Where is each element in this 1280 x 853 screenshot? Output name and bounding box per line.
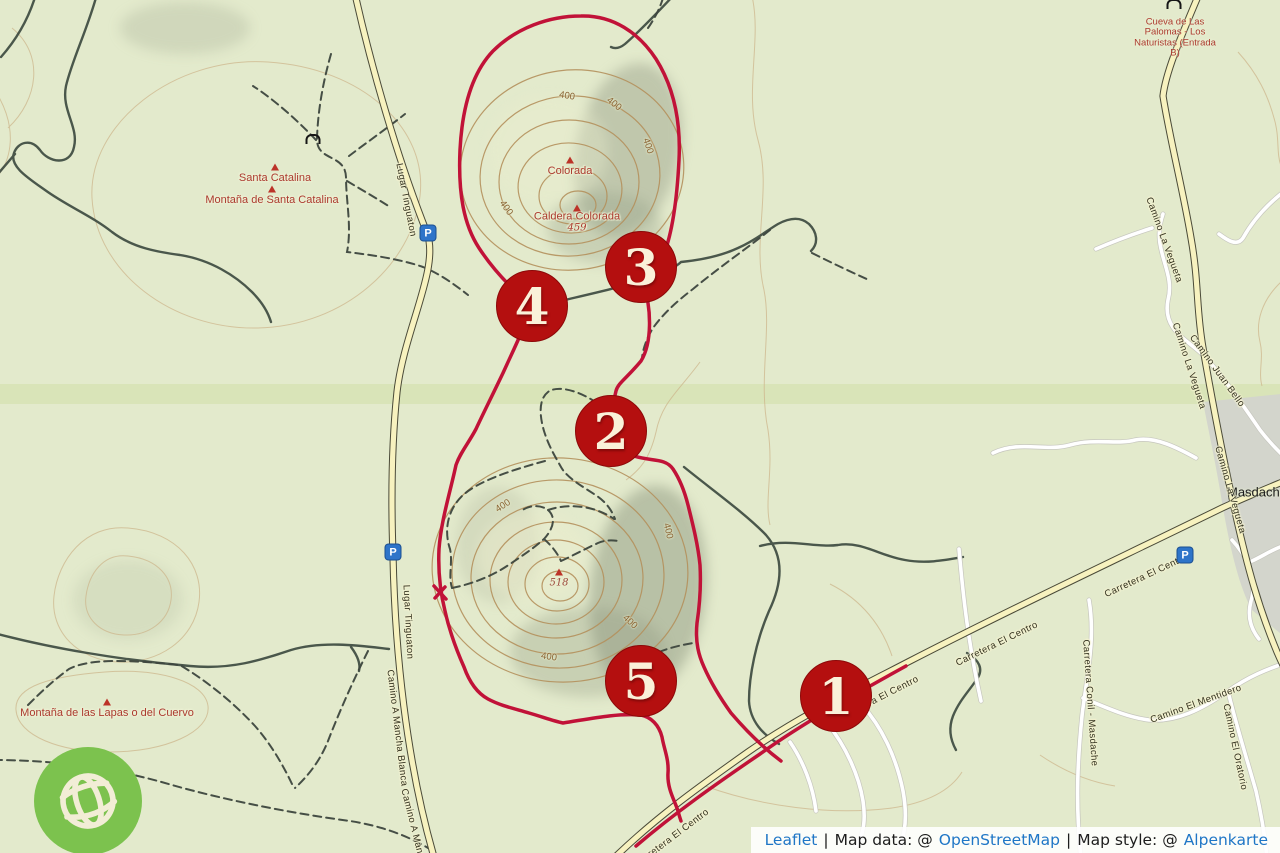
road-label: Carretera El Centro xyxy=(1103,552,1189,600)
map-overlay-layer: 12345Santa CatalinaMontaña de Santa Cata… xyxy=(0,0,1280,853)
contour-label: 400 xyxy=(497,198,515,217)
contour-label: 400 xyxy=(604,95,623,113)
leaflet-link[interactable]: Leaflet xyxy=(765,831,818,849)
road-label: Camino La Vegueta xyxy=(1170,321,1208,410)
globe-icon xyxy=(45,758,131,844)
alpenkarte-logo[interactable] xyxy=(34,747,142,853)
peak-icon xyxy=(555,569,563,576)
peak-icon xyxy=(271,164,279,171)
peak-label: Colorada xyxy=(548,165,593,177)
parking-icon: P xyxy=(386,545,401,560)
contour-label: 400 xyxy=(558,89,576,103)
road-label: Carretera Conil - Masdache xyxy=(1080,639,1100,767)
cave-icon xyxy=(1167,0,1182,9)
attribution-separator: | xyxy=(1066,831,1071,849)
road-label: Camino A Mancha Blanca xyxy=(398,788,437,853)
waypoint-marker-5[interactable]: 5 xyxy=(605,645,677,717)
waypoint-marker-3[interactable]: 3 xyxy=(605,231,677,303)
road-label: Camino Juan Bello xyxy=(1187,333,1247,409)
road-label: Carretera El Centro xyxy=(954,619,1040,668)
map-viewport[interactable]: 12345Santa CatalinaMontaña de Santa Cata… xyxy=(0,0,1280,853)
poi-label: Cueva de Las Palomas - Los Naturistas (E… xyxy=(1132,18,1218,59)
peak-label: Montaña de Santa Catalina xyxy=(205,194,338,206)
road-label: Camino La Vegueta xyxy=(1212,445,1247,535)
attribution-bar: Leaflet | Map data: @ OpenStreetMap | Ma… xyxy=(751,827,1280,853)
contour-label: 400 xyxy=(493,497,512,515)
road-label: Camino El Oratorio xyxy=(1220,703,1249,791)
cave-icon xyxy=(306,134,321,144)
peak-label: Caldera Colorada459 xyxy=(534,211,620,234)
road-label: Lugar Tinguaton xyxy=(393,162,418,237)
openstreetmap-link[interactable]: OpenStreetMap xyxy=(939,831,1060,849)
road-label: Camino La Vegueta xyxy=(1143,196,1184,285)
map-style-prefix: Map style: @ xyxy=(1077,831,1177,849)
contour-label: 400 xyxy=(640,137,655,155)
peak-label: Santa Catalina xyxy=(239,172,311,184)
map-data-prefix: Map data: @ xyxy=(835,831,933,849)
parking-icon: P xyxy=(421,226,436,241)
place-label: Masdache xyxy=(1227,485,1280,500)
attribution-separator: | xyxy=(823,831,828,849)
road-label: Lugar Tinguaton xyxy=(401,584,416,659)
peak-icon xyxy=(103,699,111,706)
alpenkarte-link[interactable]: Alpenkarte xyxy=(1184,831,1268,849)
contour-label: 400 xyxy=(540,650,557,663)
spot-height-label: 518 xyxy=(549,578,568,589)
road-label: Carretera El Centro xyxy=(633,807,711,853)
waypoint-marker-1[interactable]: 1 xyxy=(800,660,872,732)
peak-icon xyxy=(573,205,581,212)
peak-label: Montaña de las Lapas o del Cuervo xyxy=(20,707,194,719)
contour-label: 400 xyxy=(620,613,639,632)
parking-icon: P xyxy=(1178,548,1193,563)
waypoint-marker-4[interactable]: 4 xyxy=(496,270,568,342)
road-label: Camino A Mancha Blanca xyxy=(384,669,409,787)
peak-icon xyxy=(268,186,276,193)
waypoint-marker-2[interactable]: 2 xyxy=(575,395,647,467)
contour-label: 400 xyxy=(661,522,675,540)
road-label: Camino El Mentidero xyxy=(1149,682,1243,725)
peak-icon xyxy=(566,157,574,164)
